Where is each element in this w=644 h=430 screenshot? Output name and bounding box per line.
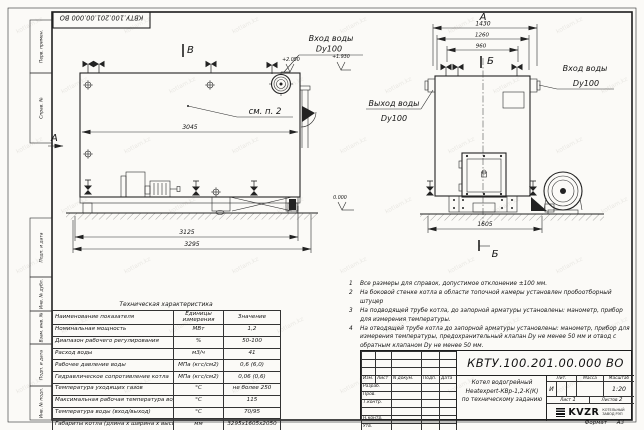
table-row: Гидравлическое сопротивление котлаМПа (к… [53, 372, 281, 384]
note-number: 4 [344, 325, 360, 350]
position-mark-icon [83, 149, 93, 159]
valve-icon [426, 181, 434, 196]
valve-icon [206, 61, 217, 73]
frame-label: Справ. № [39, 97, 45, 119]
revision-row: Н.контр. [362, 416, 457, 424]
sheet-cell: Лист 1 [547, 397, 590, 404]
revision-row [362, 360, 457, 368]
table-row: Диапазон рабочего регулирования%50-100 [53, 336, 281, 348]
signature-role: Пров. [362, 392, 392, 400]
spec-col-value: Значение [224, 311, 281, 325]
table-cell: Температура уходящих газов [53, 383, 174, 395]
valve-icon [250, 181, 258, 196]
level-1930: +1.930 [332, 54, 350, 60]
spec-col-units: Единицы измерения [174, 311, 224, 325]
section-letter-B-bottom: Б [492, 249, 499, 260]
note-number: 2 [344, 289, 360, 306]
table-cell: не более 250 [224, 383, 281, 395]
spec-col-name: Наименование показателя [53, 311, 174, 325]
table-cell: °С [174, 395, 224, 407]
signature-role: Н.контр. [362, 416, 392, 424]
inlet-flange [269, 72, 293, 96]
frame-label: Взам. инв. № [39, 312, 45, 342]
inspection-opening [503, 92, 524, 108]
dim-1430: 1430 [475, 21, 490, 28]
table-cell: мм [174, 419, 224, 430]
revision-row: Разраб. [362, 384, 457, 392]
inlet-water-label-front: Вход воды [563, 64, 608, 73]
table-cell: 50-100 [224, 336, 281, 348]
top-stamp-doc-number: КВТУ.100.201.00.000 ВО [60, 14, 144, 22]
table-cell: МВт [174, 325, 224, 337]
lit-value: И [547, 382, 557, 397]
inlet-water-size: Dy100 [316, 45, 342, 54]
table-row: Температура уходящих газов°Сне более 250 [53, 383, 281, 395]
outlet-water-size: Dy100 [381, 114, 407, 123]
sheets-cell: Листов 2 [590, 397, 634, 404]
valve-icon [192, 181, 200, 196]
note-text: Все размеры для справок, допустимое откл… [360, 280, 630, 288]
outlet-water-label: Выход воды [369, 99, 420, 108]
lit-cell [557, 382, 567, 397]
furnace-door [459, 153, 506, 197]
lit-cell [567, 382, 577, 397]
dim-3045: 3045 [182, 124, 197, 131]
note-item: 4На отводящей трубе котла до запорной ар… [344, 325, 630, 350]
mass-header: Масса [577, 375, 604, 382]
table-cell: 1,2 [224, 325, 281, 337]
table-cell: Расход воды [53, 348, 174, 360]
spec-table: Техническая характеристика Наименование … [52, 299, 280, 430]
burner-fan-motor [121, 172, 180, 197]
note-text: На отводящей трубе котла до запорной арм… [360, 325, 630, 350]
table-cell: °С [174, 383, 224, 395]
valve-icon [512, 64, 523, 76]
signature-role: Разраб. [362, 384, 392, 392]
frame-label: Перв. примен. [39, 30, 45, 63]
dim-3295: 3295 [184, 241, 199, 248]
scale-value: 1:20 [604, 382, 634, 397]
table-cell: 70/95 [224, 407, 281, 419]
note-item: 3На подводящей трубе котла, до запорной … [344, 307, 630, 324]
drawing-title-line: Heatexpert-КВр-1,2-К(К) [457, 388, 547, 397]
signature-role: Утв. [362, 424, 392, 430]
sheet-label: Лист [560, 398, 571, 403]
frame-label: Инв. № подл. [39, 388, 45, 418]
front-view: А 1430 1260 960 Б Выход воды Dy100 Вход … [366, 12, 614, 260]
table-row: Температура воды (вход/выход)°С70/95 [53, 407, 281, 419]
inlet-water-size-front: Dy100 [573, 79, 599, 88]
revision-row: Пров. [362, 392, 457, 400]
table-cell: 3295х1605х2050 [224, 419, 281, 430]
blower-fan [544, 172, 582, 214]
drawing-sheet: kotlam.kzkotlam.kzkotlam.kzkotlam.kzkotl… [0, 0, 644, 430]
valve-icon [83, 61, 94, 73]
revision-row [362, 352, 457, 360]
table-cell: Номинальная мощность [53, 325, 174, 337]
spec-table-title: Техническая характеристика [52, 299, 280, 310]
note-item: 1Все размеры для справок, допустимое отк… [344, 280, 630, 288]
scale-header: Масштаб [604, 375, 634, 382]
table-row: Номинальная мощностьМВт1,2 [53, 325, 281, 337]
sheets-label: Листов [602, 398, 618, 403]
table-cell: Максимальная рабочая температура воды [53, 395, 174, 407]
frame-label: Подп. и дата [39, 350, 45, 380]
logo-sub-line: ЗАВОД РЭП [602, 413, 624, 417]
title-block: Изм.ЛистN докум.Подп.ДатаРазраб.Пров.Т.к… [360, 350, 632, 420]
inlet-flange [530, 79, 537, 92]
table-row: Рабочее давление водыМПа (кгс/см2)0,6 (6… [53, 360, 281, 372]
valve-icon [267, 62, 278, 74]
signature-role: Т.контр. [362, 400, 392, 408]
note-text: На подводящей трубе котла, до запорной а… [360, 307, 630, 324]
boiler-body-side [80, 73, 300, 197]
section-letter-B-top: Б [487, 56, 494, 67]
revision-row: Т.контр. [362, 400, 457, 408]
dim-1605: 1605 [477, 221, 492, 228]
boiler-body-front [435, 76, 530, 196]
note-item: 2На боковой стенке котла в области топоч… [344, 289, 630, 306]
revision-row: Утв. [362, 424, 457, 430]
kvzr-logo-icon [556, 408, 565, 417]
frame-label: Инв. № дубл. [39, 279, 45, 309]
valve-icon [84, 180, 92, 195]
callout-see-p2: см. п. 2 [249, 107, 282, 117]
frame-label: Подп. и дата [39, 232, 45, 262]
valve-icon [441, 64, 452, 76]
drawing-title-line: по техническому заданию [457, 396, 547, 405]
table-cell: МПа (кгс/см2) [174, 360, 224, 372]
dim-1260: 1260 [475, 33, 489, 39]
outlet-flange [428, 79, 435, 92]
table-cell: 115 [224, 395, 281, 407]
level-2050: +2.050 [282, 57, 300, 63]
signature-role [362, 408, 392, 416]
table-cell: 0,06 (0,6) [224, 372, 281, 384]
revision-row [362, 408, 457, 416]
format-word: Формат [585, 420, 607, 426]
drawing-title: Котел водогрейный Heatexpert-КВр-1,2-К(К… [456, 375, 547, 425]
table-cell: 41 [224, 348, 281, 360]
format-value: А3 [617, 420, 624, 426]
note-number: 3 [344, 307, 360, 324]
kvzr-logo-text: KVZR [568, 407, 599, 418]
format-label: Формат А3 [545, 420, 632, 426]
dim-960: 960 [476, 44, 487, 50]
table-cell: МПа (кгс/см2) [174, 372, 224, 384]
revision-row [362, 368, 457, 376]
revision-table: Изм.ЛистN докум.Подп.ДатаРазраб.Пров.Т.к… [361, 351, 457, 430]
revision-row: Изм.ЛистN докум.Подп.Дата [362, 376, 457, 384]
table-cell: °С [174, 407, 224, 419]
company-logo: KVZR КОТЕЛЬНЫЙ ЗАВОД РЭП [547, 404, 634, 421]
view-letter-B: В [187, 45, 194, 56]
view-letter-A: А [50, 133, 58, 144]
note-text: На боковой стенке котла в области топочн… [360, 289, 630, 306]
drawing-title-line: Котел водогрейный [457, 379, 547, 388]
level-zero: 0.000 [333, 195, 347, 201]
table-cell: Гидравлическое сопротивление котла [53, 372, 174, 384]
inlet-water-label: Вход воды [309, 34, 354, 43]
table-cell: Габариты котла (длина х ширина х высота) [53, 419, 174, 430]
table-row: Габариты котла (длина х ширина х высота)… [53, 419, 281, 430]
sheets-value: 2 [619, 397, 623, 403]
table-cell: Температура воды (вход/выход) [53, 407, 174, 419]
dim-3125: 3125 [179, 229, 194, 236]
table-cell: % [174, 336, 224, 348]
position-mark-icon [83, 80, 93, 90]
table-cell: Диапазон рабочего регулирования [53, 336, 174, 348]
lit-header: Лит. [547, 375, 577, 382]
kvzr-logo-subtitle: КОТЕЛЬНЫЙ ЗАВОД РЭП [602, 409, 624, 417]
table-cell: 0,6 (6,0) [224, 360, 281, 372]
table-cell: Рабочее давление воды [53, 360, 174, 372]
valve-icon [453, 64, 464, 76]
doc-number: КВТУ.100.201.00.000 ВО [456, 351, 634, 376]
mass-value [577, 382, 604, 397]
position-mark-icon [205, 80, 215, 90]
side-view: 3045 см. п. 2 В А Вход воды Dy100 +2.050… [48, 34, 363, 253]
note-number: 1 [344, 280, 360, 288]
notes-list: 1Все размеры для справок, допустимое отк… [344, 280, 630, 351]
table-row: Расход водым3/ч41 [53, 348, 281, 360]
position-mark-icon [211, 187, 221, 197]
outlet-pipe [300, 86, 316, 148]
table-row: Максимальная рабочая температура воды°С1… [53, 395, 281, 407]
valve-icon [94, 61, 105, 73]
lit-mass-scale: Лит. Масса Масштаб И 1:20 Лист 1 Листов … [546, 375, 634, 421]
table-cell: м3/ч [174, 348, 224, 360]
sheet-value: 1 [572, 397, 576, 403]
revision-grid: Изм.ЛистN докум.Подп.ДатаРазраб.Пров.Т.к… [361, 351, 457, 430]
